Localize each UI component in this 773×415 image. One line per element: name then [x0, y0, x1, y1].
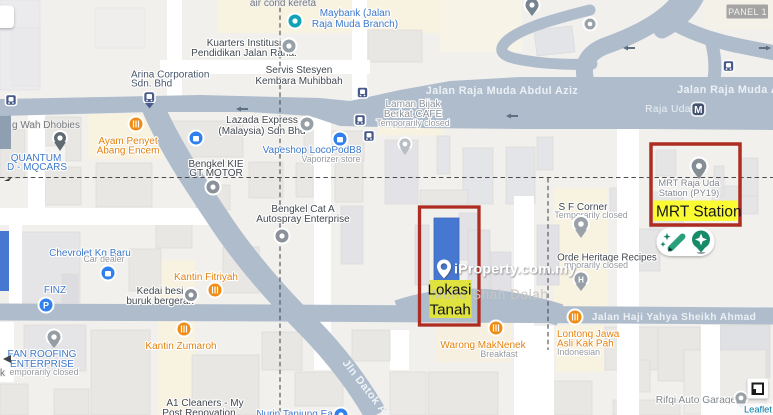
svg-text:Jalan Haji Yahya Sheikh Ahmad: Jalan Haji Yahya Sheikh Ahmad: [592, 312, 756, 323]
svg-text:Post Renovation: Post Renovation: [162, 408, 235, 415]
svg-text:M: M: [694, 105, 702, 116]
svg-text:FINZ: FINZ: [44, 285, 66, 296]
svg-text:Tanah: Tanah: [430, 302, 471, 319]
svg-text:g Wah Dhobies: g Wah Dhobies: [12, 120, 80, 131]
svg-text:Lokasi: Lokasi: [428, 282, 472, 299]
svg-text:Maybank (Jalan: Maybank (Jalan: [320, 8, 391, 19]
svg-text:Sdn. Bhd: Sdn. Bhd: [131, 79, 172, 90]
svg-text:Temporarily closed: Temporarily closed: [376, 118, 449, 128]
svg-text:MRT Raja Uda: MRT Raja Uda: [658, 178, 720, 188]
svg-text:Car dealer: Car dealer: [83, 254, 124, 264]
svg-text:H: H: [578, 276, 584, 285]
svg-text:Pendidikan Jalan Raha.: Pendidikan Jalan Raha.: [191, 48, 297, 59]
svg-text:Raja Uda: Raja Uda: [645, 104, 691, 115]
svg-text:(Malaysia) Sdn Bhd: (Malaysia) Sdn Bhd: [218, 126, 305, 137]
svg-text:Abang Encem: Abang Encem: [97, 146, 160, 157]
svg-text:Vaporizer store: Vaporizer store: [302, 154, 361, 164]
svg-text:P: P: [43, 301, 49, 311]
svg-text:Nurin Tanjung Eat: Nurin Tanjung Eat: [256, 409, 336, 415]
svg-text:iProperty.com.my: iProperty.com.my: [454, 262, 576, 278]
svg-text:Jalan Raja Muda Abdul Aziz: Jalan Raja Muda Abdul Aziz: [426, 85, 579, 97]
svg-text:Servis Stesyen: Servis Stesyen: [266, 65, 333, 76]
svg-text:Lazada Express: Lazada Express: [226, 115, 298, 126]
svg-text:Kantin Fitriyah: Kantin Fitriyah: [174, 272, 238, 283]
svg-text:Jalan Raja Muda A: Jalan Raja Muda A: [677, 84, 773, 96]
svg-text:Kantin Zumaroh: Kantin Zumaroh: [145, 341, 216, 352]
svg-text:Breakfast: Breakfast: [480, 349, 518, 359]
svg-text:Autospray Enterprise: Autospray Enterprise: [256, 214, 350, 225]
svg-text:Indonesian: Indonesian: [557, 347, 600, 357]
svg-text:PANEL 1: PANEL 1: [728, 7, 767, 17]
svg-text:D - MQCARS: D - MQCARS: [7, 162, 67, 173]
svg-text:Raja Muda Branch): Raja Muda Branch): [312, 19, 398, 30]
svg-text:MRT Station: MRT Station: [656, 204, 742, 221]
svg-text:Station (PY19): Station (PY19): [659, 188, 719, 198]
svg-text:Leaflet: Leaflet: [744, 405, 772, 415]
svg-text:emporarily closed: emporarily closed: [10, 367, 79, 377]
svg-text:air cond kereta: air cond kereta: [250, 0, 317, 9]
svg-text:Kembara Muhibbah: Kembara Muhibbah: [255, 76, 342, 87]
svg-text:Temporarily closed: Temporarily closed: [554, 210, 627, 220]
svg-text:GT MOTOR: GT MOTOR: [189, 168, 243, 179]
